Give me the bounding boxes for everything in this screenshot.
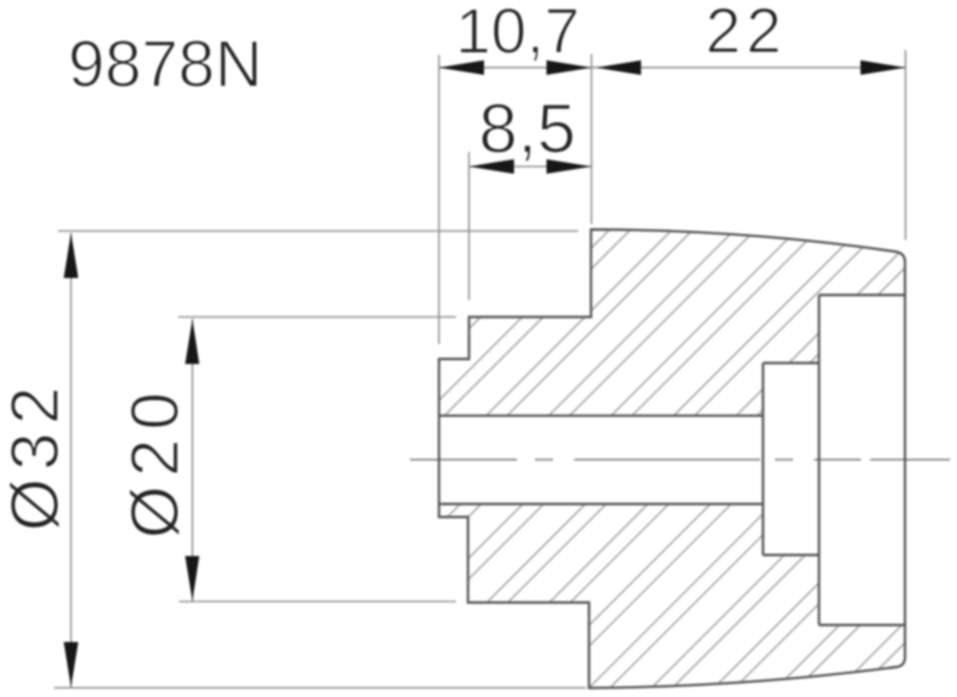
svg-text:Ø32: Ø32 — [0, 379, 73, 532]
svg-text:10,7: 10,7 — [455, 0, 580, 67]
svg-text:22: 22 — [705, 0, 786, 67]
svg-text:8,5: 8,5 — [479, 90, 576, 168]
svg-text:9878N: 9878N — [68, 27, 263, 101]
svg-text:Ø20: Ø20 — [117, 383, 193, 539]
